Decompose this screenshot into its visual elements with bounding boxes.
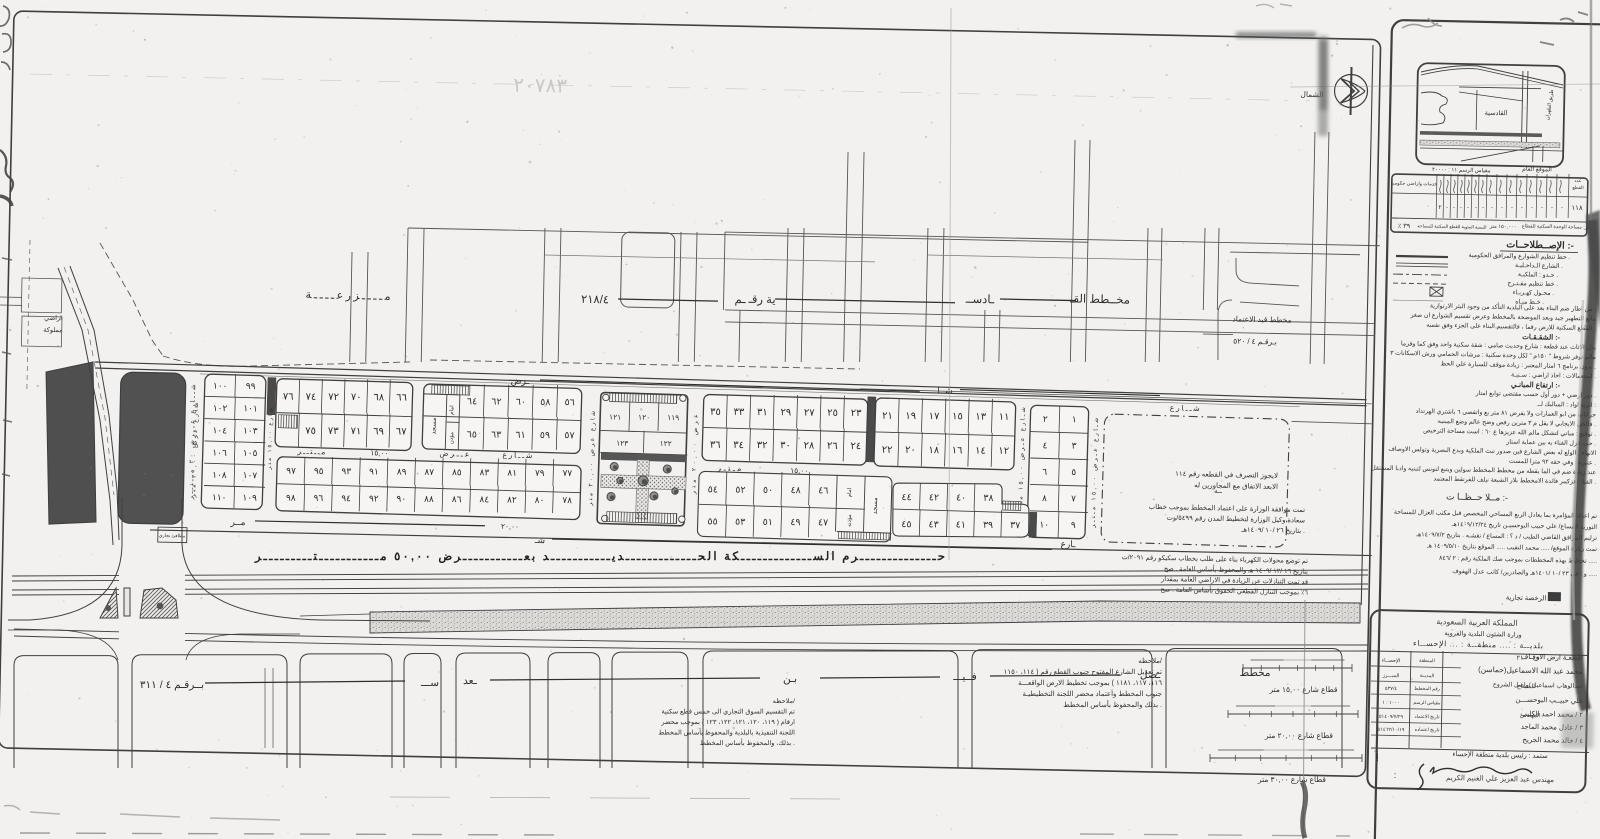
- svg-text:-: -: [1551, 205, 1553, 211]
- svg-text:٪ ٣٩: ٪ ٣٩: [1398, 223, 1411, 230]
- svg-text:٢٠٧٨٣: ٢٠٧٨٣: [513, 74, 567, 97]
- svg-text:١٦: ١٦: [952, 445, 963, 456]
- svg-text:تم تعديل الشارع المفتوح جنوب ا: تم تعديل الشارع المفتوح جنوب القطع رقم (…: [1004, 668, 1162, 676]
- svg-text:٤: ٤: [1042, 440, 1047, 450]
- svg-text:-: -: [1521, 205, 1523, 211]
- svg-text:١٣: ١٣: [975, 411, 987, 422]
- svg-text:٥٣: ٥٣: [735, 517, 746, 528]
- svg-text:تم التقسيم السوق التجاري الى خ: تم التقسيم السوق التجاري الى خمس قطع سكن…: [661, 708, 795, 716]
- svg-text:٨٤: ٨٤: [479, 494, 489, 504]
- svg-text:٤٩: ٤٩: [790, 517, 801, 528]
- svg-text:٢٧: ٢٧: [804, 407, 816, 418]
- svg-text:٨٠: ٨٠: [535, 495, 545, 505]
- svg-text:٤٦: ٤٦: [818, 485, 829, 496]
- svg-text:٩١: ٩١: [369, 466, 379, 476]
- svg-text:٧: ٧: [1071, 493, 1076, 503]
- svg-text:٦٤: ٦٤: [467, 396, 478, 407]
- svg-text:١١: ١١: [999, 412, 1010, 423]
- svg-text:قطاع شارع ١٥,٠٠ متر: قطاع شارع ١٥,٠٠ متر: [1268, 685, 1337, 694]
- svg-text:٣٨: ٣٨: [983, 493, 994, 504]
- svg-text:٢٤: ٢٤: [850, 441, 861, 452]
- svg-text:مخطط قيد الاعتماد: مخطط قيد الاعتماد: [1232, 314, 1291, 324]
- svg-text:٩٤: ٩٤: [341, 493, 351, 503]
- svg-text:المبـــرز: المبـــرز: [1381, 673, 1399, 679]
- svg-text:اراضي: اراضي: [44, 314, 62, 322]
- svg-text:٨٢: ٨٢: [507, 494, 517, 504]
- svg-text:٥١: ٥١: [763, 517, 774, 528]
- svg-text:علي حبيــب البوحســـن: علي حبيــب البوحســـن: [1515, 696, 1583, 705]
- svg-text::: :: [1394, 770, 1397, 780]
- svg-text:٩٣: ٩٣: [341, 466, 351, 476]
- svg-text:٤٥: ٤٥: [901, 519, 912, 530]
- svg-text:١٧: ١٧: [928, 411, 940, 422]
- svg-text:٩٥: ٩٥: [314, 466, 324, 476]
- svg-text:٥٥: ٥٥: [707, 516, 718, 527]
- svg-text:امام: امام: [448, 405, 455, 415]
- svg-text:١٢٣: ١٢٣: [616, 439, 629, 448]
- svg-text:ارقام ( ١١٩، ١٢٠، ١٢١، ١٢٢، ١٢: ارقام ( ١١٩، ١٢٠، ١٢١، ١٢٢، ١٢٣ ) بموجب …: [660, 718, 795, 726]
- svg-text:٦١: ٦١: [515, 430, 526, 441]
- svg-text:ـم: ـم: [734, 294, 746, 306]
- svg-text:٥٠: ٥٠: [763, 485, 774, 496]
- svg-text:٩٨: ٩٨: [286, 493, 296, 503]
- svg-text:٦٥: ٦٥: [467, 429, 478, 440]
- svg-text:٢: ٢: [1043, 414, 1048, 424]
- svg-text:٢٨: ٢٨: [803, 440, 815, 451]
- svg-text:١٢٠: ١٢٠: [638, 413, 650, 422]
- svg-text:مؤذنه: مؤذنه: [846, 514, 853, 527]
- svg-text:امام: امام: [846, 487, 853, 497]
- svg-text:-: -: [1446, 205, 1448, 211]
- svg-text:٧٤: ٧٤: [305, 392, 316, 403]
- svg-text:٤٤: ٤٤: [901, 492, 912, 503]
- svg-text:٢١٨/٤: ٢١٨/٤: [581, 294, 609, 307]
- svg-text:-: -: [1467, 205, 1469, 211]
- svg-text:-: -: [1561, 205, 1563, 211]
- svg-text:الإصــطلاحــات :-: الإصــطلاحــات :-: [1506, 239, 1574, 251]
- svg-text:١١٦، ١١٧، ١١٨١ ) بموجب تخطيط ا: ١١٦، ١١٧، ١١٨١ ) بموجب تخطيط الارض الواق…: [1018, 679, 1162, 687]
- svg-text:٥٣٧/٤: ٥٣٧/٤: [1385, 686, 1398, 692]
- svg-text:٢٦: ٢٦: [827, 441, 838, 452]
- svg-text:٢٢: ٢٢: [882, 445, 893, 456]
- svg-text:جنوب المخطط واعتماد محضر اللجن: جنوب المخطط واعتماد محضر اللجنة التخطيطي…: [1022, 690, 1162, 698]
- svg-text:مخطط: مخطط: [1240, 667, 1271, 679]
- svg-text:٣٠: ٣٠: [780, 440, 791, 451]
- svg-text:ـارع: ـارع: [1060, 539, 1076, 550]
- svg-text:٥١٤٠٩/٧/٢٩: ٥١٤٠٩/٧/٢٩: [1379, 714, 1404, 721]
- svg-text:٧٧: ٧٧: [562, 468, 572, 478]
- svg-text:ف - ٢١٠: ف - ٢١٠: [1517, 655, 1540, 662]
- svg-text:ية رقـ: ية رقـ: [747, 294, 775, 307]
- svg-text:١٥٠,٠٠٠ متر: ١٥٠,٠٠٠ متر: [1489, 224, 1517, 231]
- svg-text:قطاع شارع ٢٠,٠٠ متر: قطاع شارع ٢٠,٠٠ متر: [1264, 731, 1333, 740]
- svg-text:٩٢: ٩٢: [369, 493, 379, 503]
- svg-text:ملاحظه/: ملاحظه/: [773, 697, 796, 705]
- svg-text:ـعد: ـعد: [463, 675, 478, 687]
- svg-text:٤١: ٤١: [956, 519, 967, 530]
- svg-text:مسجد: مسجد: [430, 417, 438, 435]
- svg-text:٥٤: ٥٤: [708, 484, 719, 495]
- svg-text:الرخصة تجارية: الرخصة تجارية: [1506, 594, 1547, 603]
- svg-text:٤٢: ٤٢: [929, 492, 940, 503]
- svg-text:٥١٤٦٢/١٠/١٩: ٥١٤٦٢/١٠/١٩: [1378, 727, 1405, 734]
- svg-text:٨٨: ٨٨: [424, 494, 434, 504]
- svg-text:١٠٢: ١٠٢: [213, 403, 228, 413]
- svg-text:١٢٢: ١٢٢: [660, 439, 672, 448]
- svg-text:١٥: ١٥: [952, 411, 963, 422]
- svg-text:-: -: [1453, 205, 1455, 211]
- svg-text:ـرض: ـرض: [511, 375, 530, 387]
- svg-text:فــيـــ: فــيـــ: [952, 671, 977, 683]
- svg-text:٦٦: ٦٦: [396, 392, 407, 403]
- svg-text:المهندس: المهندس: [1520, 712, 1541, 719]
- svg-text:١٨: ١٨: [928, 445, 940, 456]
- svg-text:-: -: [1491, 205, 1493, 211]
- svg-text:٣٩: ٣٩: [983, 520, 994, 531]
- svg-text:١٠٣: ١٠٣: [243, 425, 258, 435]
- svg-text:٨٥: ٨٥: [452, 467, 462, 477]
- svg-text:١٠٦: ١٠٦: [212, 447, 227, 457]
- svg-text:-: -: [1475, 205, 1477, 211]
- svg-text:٩: ٩: [1071, 520, 1076, 530]
- svg-text:٣٣: ٣٣: [733, 407, 745, 418]
- svg-text:-: -: [1541, 205, 1543, 211]
- svg-text:بـن: بـن: [783, 673, 797, 685]
- svg-text:-: -: [1460, 205, 1462, 211]
- svg-text:٤٠: ٤٠: [956, 492, 967, 503]
- svg-text:مقياس الرسم ١١ : ٢٠٠٠٠: مقياس الرسم ١١ : ٢٠٠٠٠: [1432, 166, 1491, 174]
- svg-text:الشقـقـات :-: الشقـقـات :-: [1522, 332, 1561, 342]
- svg-text:٣٧: ٣٧: [1010, 520, 1021, 531]
- svg-text:١٠٩: ١٠٩: [242, 492, 257, 502]
- svg-text:٦٨: ٦٨: [373, 392, 385, 403]
- svg-text:٩٦: ٩٦: [313, 493, 323, 503]
- svg-text:شــا: شــا: [937, 385, 953, 395]
- svg-text:ملاحظه/: ملاحظه/: [1138, 657, 1162, 665]
- svg-text:٣: ٣: [1071, 441, 1076, 451]
- svg-text:٥٢: ٥٢: [735, 485, 746, 496]
- svg-text:الموقع العام: الموقع العام: [1522, 166, 1552, 174]
- svg-text:١: ١: [1072, 414, 1077, 424]
- svg-text:المديـنة: المديـنة: [1420, 673, 1435, 678]
- svg-text:٧١: ٧١: [350, 426, 361, 437]
- svg-text:٨١: ٨١: [507, 467, 517, 477]
- svg-text:٢٠: ٢٠: [905, 445, 916, 456]
- svg-text:٢٣: ٢٣: [851, 408, 863, 419]
- svg-text:١٠٨: ١٠٨: [212, 470, 227, 480]
- svg-text:مخــطط القـ: مخــطط القـ: [1069, 292, 1130, 306]
- svg-text:١٢١: ١٢١: [609, 412, 621, 421]
- svg-text:٧٦: ٧٦: [283, 391, 294, 402]
- svg-text:مؤذن: مؤذن: [448, 432, 455, 445]
- svg-text:٤٧: ٤٧: [818, 517, 829, 528]
- svg-text:عدد: عدد: [1574, 178, 1582, 183]
- svg-text:٢٠,٠٠: ٢٠,٠٠: [501, 522, 519, 531]
- svg-text:٨: ٨: [1042, 493, 1047, 503]
- svg-text:٨٦: ٨٦: [452, 494, 462, 504]
- svg-text:١٠٠: ١٠٠: [213, 381, 228, 391]
- svg-text:١٠٧: ١٠٧: [243, 470, 258, 480]
- svg-text:مملوكة: مملوكة: [43, 326, 63, 334]
- svg-text:٦٧: ٦٧: [396, 426, 408, 437]
- svg-text:١٢: ١٢: [998, 446, 1009, 457]
- svg-text:٧٠: ٧٠: [351, 392, 362, 403]
- svg-text:المملكة العربية السعودية: المملكة العربية السعودية: [1436, 617, 1518, 628]
- svg-text:بـرقـم ٤ / ٥٢٠: بـرقـم ٤ / ٥٢٠: [1233, 337, 1277, 347]
- svg-text:مــلا حــظــا ت :-: مــلا حــظــا ت :-: [1446, 491, 1508, 502]
- svg-text:-: -: [1511, 205, 1513, 211]
- svg-text:١٥,٠٠: ١٥,٠٠: [370, 448, 388, 458]
- svg-text:٦٩: ٦٩: [373, 426, 384, 437]
- svg-text:شـ: شـ: [534, 535, 545, 545]
- svg-text:٨٩: ٨٩: [397, 467, 407, 477]
- svg-text:الشارع الـداخـليـة .: الشارع الـداخـليـة .: [1515, 262, 1563, 270]
- svg-text:١٤: ١٤: [975, 445, 986, 456]
- svg-text:٧٥: ٧٥: [305, 426, 316, 437]
- svg-text:٩٠: ٩٠: [396, 494, 406, 504]
- svg-text:-: -: [1482, 205, 1484, 211]
- svg-text:ــه: ــه: [1214, 488, 1223, 495]
- svg-text:المساح: المساح: [1517, 683, 1535, 690]
- svg-text:خط تنظيم مقـتـرح .: خط تنظيم مقـتـرح .: [1507, 280, 1558, 288]
- svg-text:القادسية: القادسية: [1485, 109, 1508, 117]
- svg-text:٥٦: ٥٦: [564, 397, 575, 408]
- svg-text:١١٠: ١١٠: [212, 492, 227, 502]
- svg-text:٦: ٦: [1042, 467, 1047, 477]
- svg-text:المنطقة: المنطقة: [1419, 658, 1435, 663]
- svg-text:٢: ٢: [1438, 205, 1441, 211]
- svg-text:١٠٤: ١٠٤: [212, 425, 227, 435]
- svg-text:-: -: [1531, 205, 1533, 211]
- svg-text:١٠٥: ١٠٥: [243, 448, 258, 458]
- svg-text:١١٨: ١١٨: [1571, 205, 1583, 212]
- svg-text:-: -: [1501, 205, 1503, 211]
- svg-text:٢٥: ٢٥: [827, 408, 838, 419]
- svg-text:حـدو : الملكيـة .: حـدو : الملكيـة .: [1518, 271, 1559, 279]
- svg-text:١٠١: ١٠١: [243, 403, 258, 413]
- svg-text:محـول كهـربـاء .: محـول كهـربـاء .: [1513, 289, 1555, 297]
- svg-text:اعتمد: اعتمد: [1374, 750, 1380, 762]
- svg-text:مــر: مــر: [229, 517, 245, 528]
- svg-text:٢٩: ٢٩: [780, 407, 791, 418]
- svg-text:٧٩: ٧٩: [535, 468, 545, 478]
- svg-text:٦٢: ٦٢: [491, 396, 502, 407]
- svg-text:١٠٠٠ : ١: ١٠٠٠ : ١: [1382, 700, 1400, 706]
- svg-text:ســـ: ســـ: [420, 677, 439, 689]
- svg-text:١٩: ١٩: [905, 411, 916, 422]
- svg-text:٤٣: ٤٣: [928, 519, 939, 530]
- svg-text:بــرقـم ٤ / ٣١١: بــرقـم ٤ / ٣١١: [140, 679, 204, 691]
- svg-text:ـادســ: ـادســ: [965, 293, 995, 307]
- svg-text:الإحصــاء: الإحصــاء: [1382, 658, 1401, 664]
- svg-text:١١٩: ١١٩: [667, 413, 679, 422]
- svg-text:٧٢: ٧٢: [328, 392, 339, 403]
- svg-text:٣٦: ٣٦: [710, 440, 721, 451]
- svg-text:٧٣: ٧٣: [328, 426, 340, 437]
- svg-text:خدمات واراضي حكومية: خدمات واراضي حكومية: [1391, 180, 1438, 187]
- svg-text:٥٩: ٥٩: [540, 430, 551, 441]
- svg-text:٤٨: ٤٨: [790, 485, 801, 496]
- svg-text:مسجد: مسجد: [872, 497, 880, 515]
- svg-text:٥٧: ٥٧: [564, 430, 575, 441]
- svg-text:بتاريخ ٢٦ /١٠ /١٤٠٩هـ .: بتاريخ ٢٦ /١٠ /١٤٠٩هـ .: [1240, 526, 1305, 535]
- svg-text:٥: ٥: [1071, 467, 1076, 477]
- svg-text:٣٤: ٣٤: [733, 440, 744, 451]
- svg-text:٣٥: ٣٥: [710, 407, 721, 418]
- svg-text:مــتــر: مــتــر: [296, 447, 325, 457]
- svg-text:٢١: ٢١: [882, 411, 893, 422]
- svg-text:١٠: ١٠: [1039, 519, 1049, 529]
- svg-text:٦٣: ٦٣: [491, 429, 502, 440]
- svg-text:٩٧: ٩٧: [286, 466, 296, 476]
- svg-text:٧٨: ٧٨: [562, 495, 572, 505]
- svg-text:٩٩: ٩٩: [246, 381, 256, 391]
- svg-text:عــرض: عــرض: [439, 449, 469, 459]
- svg-text:٨٧: ٨٧: [424, 467, 434, 477]
- svg-text:٣١: ٣١: [757, 407, 768, 418]
- svg-text:قطاع شارع ٣٠,٠٠ متر: قطاع شارع ٣٠,٠٠ متر: [1257, 775, 1326, 784]
- svg-text:٦٠: ٦٠: [516, 397, 527, 408]
- svg-text:٨٣: ٨٣: [479, 467, 489, 477]
